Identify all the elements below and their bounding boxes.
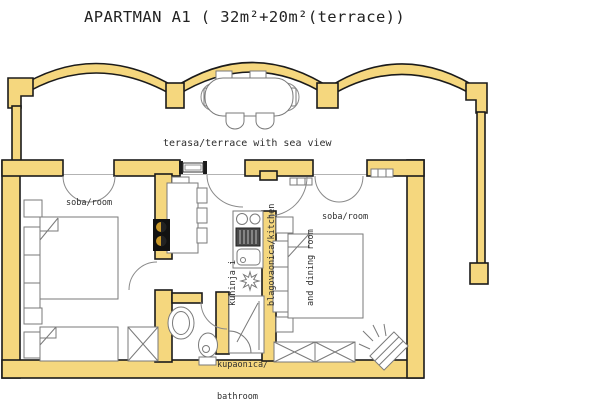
left-room-label: soba/room [66, 199, 112, 209]
bathroom-label: kupaonica/ bathroom [217, 339, 268, 400]
kitchen-label: kuhinja i blagovaonica/kitchen and dinin… [201, 146, 344, 306]
pillar-right [466, 83, 487, 113]
headboard-shelf [24, 227, 40, 255]
headboard-shelf [24, 255, 40, 283]
kitchen-label-line1: kuhinja i [227, 146, 240, 306]
terrace-table [205, 78, 293, 116]
kitchen-label-line2: blagovaonica/kitchen [266, 146, 279, 306]
bathroom-label-line2: bathroom [217, 392, 268, 400]
pillow [24, 332, 40, 358]
door-swing-left-room-interior [129, 262, 157, 290]
nightstand [24, 200, 42, 217]
wall-panel [153, 219, 170, 251]
wall-outer-right [407, 160, 424, 378]
kitchen-label-line3: and dining room [305, 146, 318, 306]
wall-top-a [2, 160, 63, 176]
left-room-furniture [24, 200, 158, 361]
terrace-chair-bottom-1 [226, 113, 244, 129]
wall-outer-left [2, 161, 20, 378]
headboard-shelf [24, 283, 40, 308]
toilet-bowl [199, 333, 218, 357]
terrace-wall-left [12, 106, 21, 162]
arch-right [326, 64, 482, 98]
pillar-mid-right [317, 83, 338, 108]
bathroom-label-line1: kupaonica/ [217, 360, 268, 371]
radiator [371, 169, 393, 177]
toilet-tank [199, 357, 216, 365]
terrace-pillar-bottom-right [470, 263, 488, 284]
terrace-chair-bottom-2 [256, 113, 274, 129]
floor-plan: APARTMAN A1 ( 32m²+20m²(terrace)) terasa… [0, 0, 600, 400]
window-cap [179, 161, 183, 174]
wall-bathroom-top [172, 293, 202, 303]
pillar-mid-left [166, 83, 184, 108]
nightstand [24, 308, 42, 324]
nightstand [276, 317, 293, 332]
terrace-wall-right [477, 112, 485, 264]
pillar-left [8, 78, 33, 108]
dining-table [167, 183, 198, 253]
page-title: APARTMAN A1 ( 32m²+20m²(terrace)) [84, 9, 405, 27]
arch-left [16, 64, 178, 97]
kitchen-window [183, 163, 203, 172]
double-bed-left [40, 217, 118, 299]
terrace-dining-set [201, 71, 299, 129]
